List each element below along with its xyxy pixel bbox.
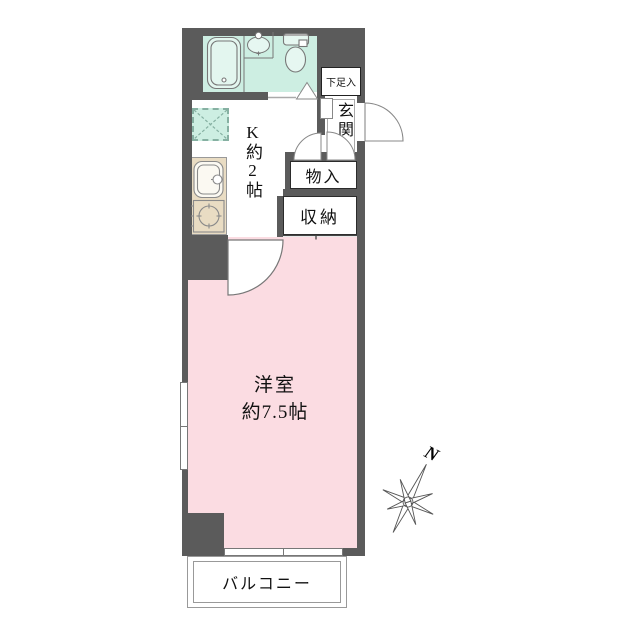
window-mullion bbox=[181, 426, 187, 427]
storage-box: 物入 bbox=[290, 161, 357, 189]
washer-pan-area bbox=[192, 108, 229, 141]
wall-segment bbox=[283, 189, 365, 196]
compass-north-label: N bbox=[421, 441, 443, 466]
wall-segment bbox=[285, 152, 365, 161]
compass-icon: N bbox=[364, 430, 468, 548]
kitchen-counter bbox=[190, 157, 227, 235]
floor-plan: 下足入 物入 収納 玄関 K約2帖 洋室 約7.5帖 バルコニー bbox=[0, 0, 640, 640]
closet-label: 収納 bbox=[300, 203, 340, 228]
wall-segment bbox=[182, 235, 228, 280]
bathroom-area bbox=[203, 36, 317, 92]
main-room-label: 洋室 約7.5帖 bbox=[192, 372, 358, 426]
storage-label: 物入 bbox=[305, 163, 341, 187]
window-mullion bbox=[283, 549, 284, 555]
wall-segment bbox=[182, 92, 268, 100]
shoe-storage-label: 下足入 bbox=[326, 74, 356, 89]
main-room-area-upper bbox=[228, 237, 357, 280]
balcony: バルコニー bbox=[187, 556, 347, 608]
shoe-storage-box: 下足入 bbox=[321, 67, 361, 96]
entrance-door-icon bbox=[365, 103, 403, 141]
window-balcony bbox=[224, 548, 343, 556]
wall-segment bbox=[317, 28, 365, 67]
main-room-size: 約7.5帖 bbox=[192, 399, 358, 426]
main-room-name: 洋室 bbox=[192, 372, 358, 399]
wall-segment bbox=[182, 100, 192, 235]
balcony-label: バルコニー bbox=[222, 570, 312, 594]
wall-segment bbox=[182, 470, 188, 514]
wall-segment bbox=[182, 280, 188, 382]
wall-segment bbox=[182, 513, 224, 556]
entrance-label: 玄関 bbox=[331, 102, 355, 140]
wall-segment bbox=[182, 28, 203, 100]
window-left bbox=[180, 382, 188, 470]
wall-segment bbox=[357, 141, 365, 556]
closet-box: 収納 bbox=[283, 196, 357, 235]
kitchen-label: K約2帖 bbox=[240, 123, 265, 199]
